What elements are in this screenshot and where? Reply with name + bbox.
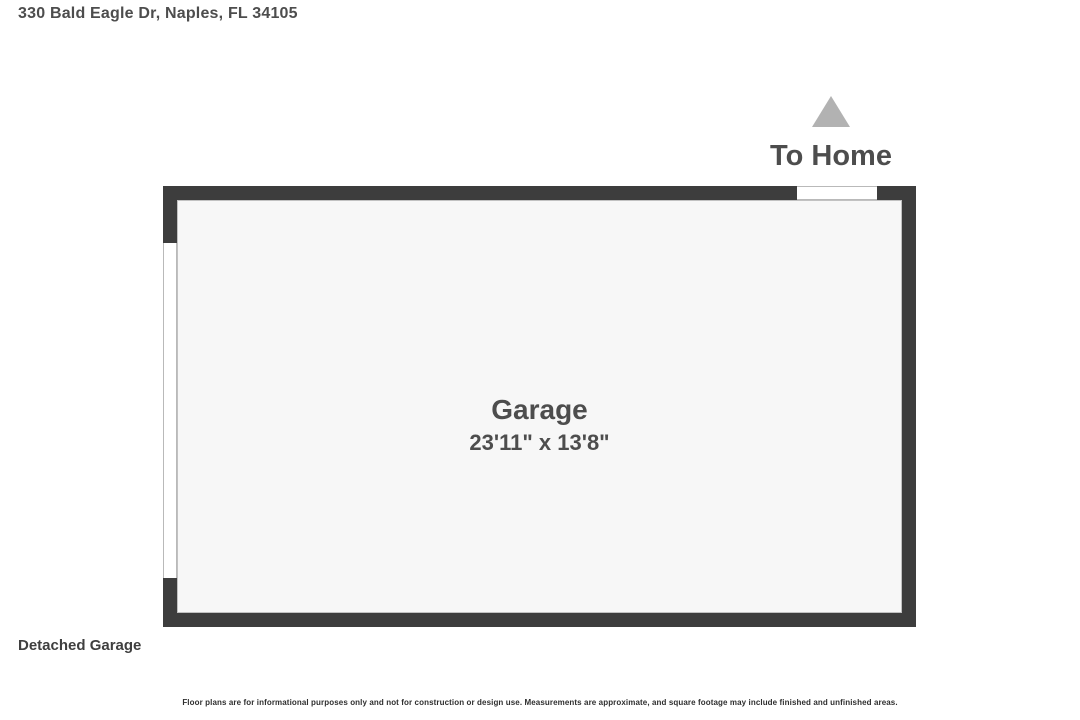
up-arrow-icon — [812, 96, 850, 127]
home-door-opening — [797, 186, 877, 200]
floor-plan-room-garage: Garage 23'11" x 13'8" — [163, 186, 916, 627]
disclaimer-text: Floor plans are for informational purpos… — [0, 698, 1080, 707]
room-dimensions: 23'11" x 13'8" — [177, 429, 902, 457]
room-name: Garage — [177, 392, 902, 427]
floor-plan-page: { "page": { "address": "330 Bald Eagle D… — [0, 0, 1080, 720]
plan-name-label: Detached Garage — [18, 637, 141, 654]
room-label: Garage 23'11" x 13'8" — [177, 392, 902, 457]
to-home-label: To Home — [731, 140, 931, 173]
to-home-indicator: To Home — [731, 96, 931, 173]
garage-door-opening — [163, 243, 177, 578]
page-title: 330 Bald Eagle Dr, Naples, FL 34105 — [18, 5, 298, 23]
